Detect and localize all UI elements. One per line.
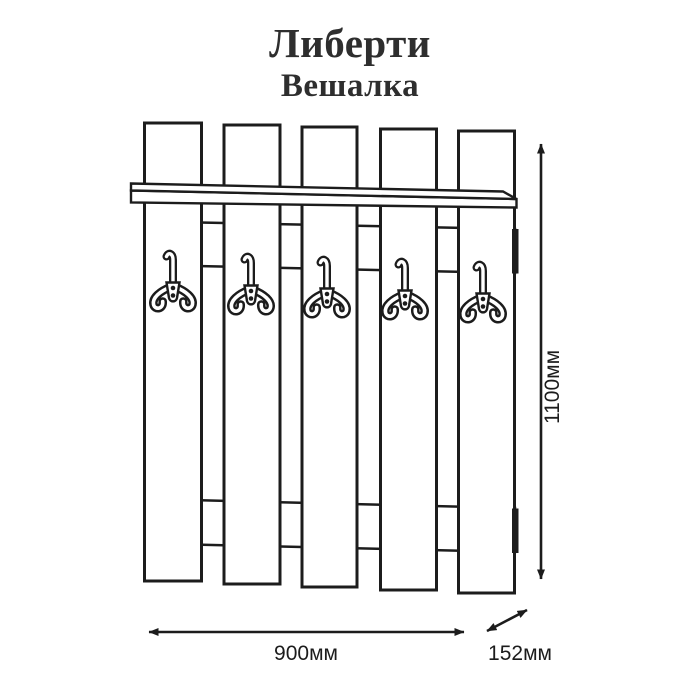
height-dimension-label: 1100мм <box>541 350 564 424</box>
lower-rail-end-tab <box>512 509 519 554</box>
coat-rack-diagram: 1100мм 900мм 152мм <box>0 0 700 700</box>
product-diagram-page: Либерти Вешалка <box>0 0 700 700</box>
upper-rail-end-tab <box>512 229 519 274</box>
depth-dimension-label: 152мм <box>488 642 552 665</box>
width-dimension-label: 900мм <box>274 642 338 665</box>
depth-dimension-arrow <box>487 610 527 631</box>
